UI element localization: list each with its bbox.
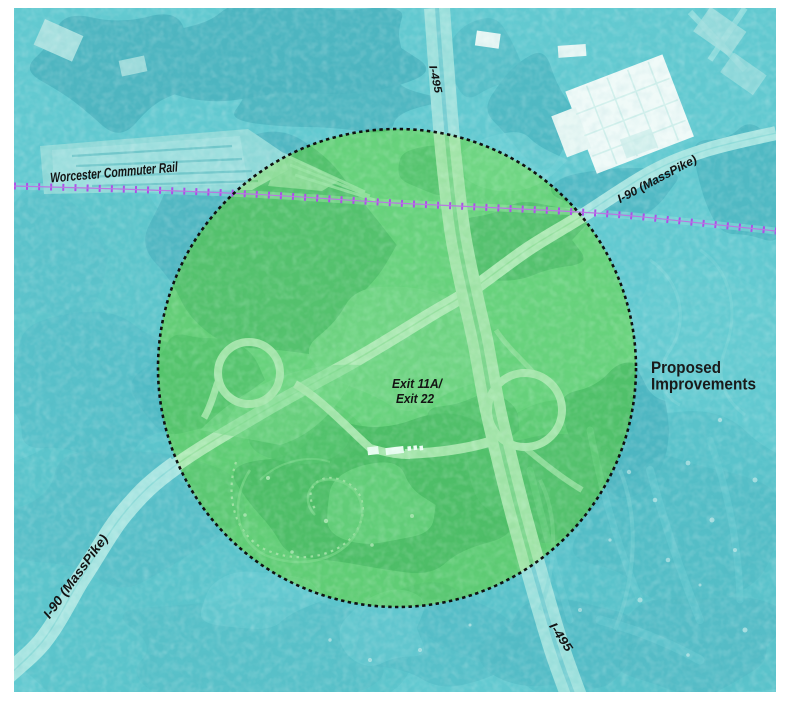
svg-text:Exit 22: Exit 22 xyxy=(396,391,435,406)
svg-text:Proposed: Proposed xyxy=(651,359,721,377)
svg-text:Improvements: Improvements xyxy=(651,376,756,394)
svg-text:Exit 11A/: Exit 11A/ xyxy=(392,376,443,391)
